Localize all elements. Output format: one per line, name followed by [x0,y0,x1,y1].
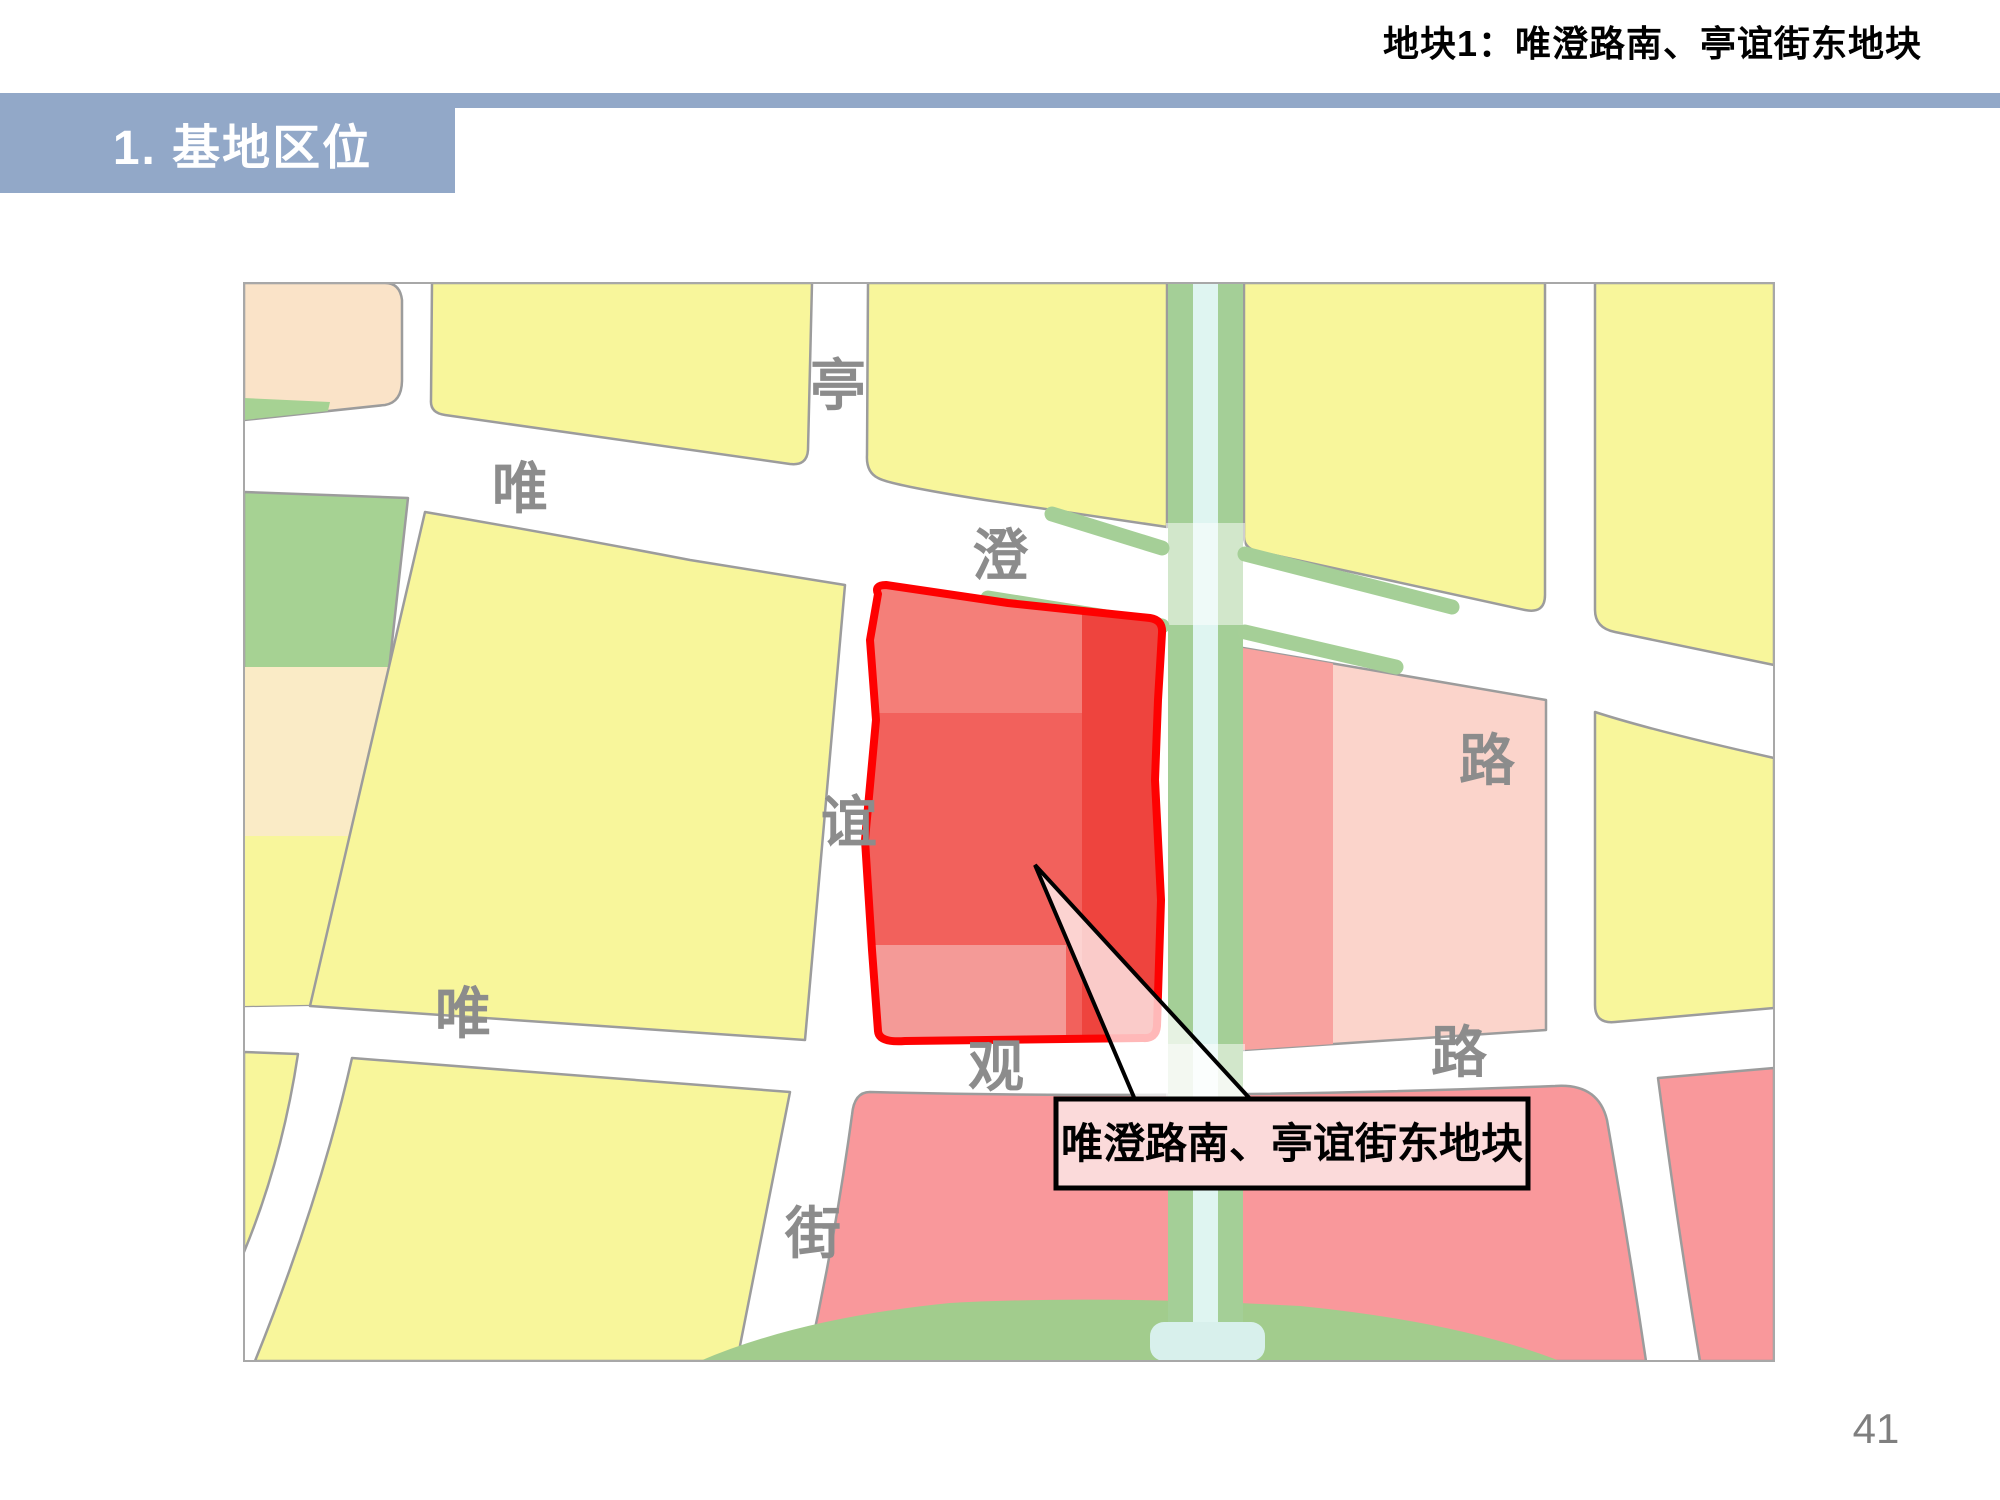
road-label-lu-lower: 路 [1431,1021,1488,1084]
page-number: 41 [1836,1405,1916,1453]
site-shade-bottom [870,945,1066,1045]
section-banner: 1. 基地区位 [0,93,455,193]
slide-page: 地块1：唯澄路南、亭谊街东地块 1. 基地区位 [0,0,2000,1500]
parcel-yellow-b [867,283,1167,527]
canal-water [1193,283,1218,1361]
road-label-yi: 谊 [821,791,877,854]
road-label-cheng: 澄 [972,524,1029,587]
parcel-yellow-e [1595,712,1774,1022]
zoning-map-svg: 亭 唯 澄 路 谊 唯 观 路 街 唯澄路南、亭谊街东地块 [243,282,1775,1362]
parcel-pink [1243,645,1546,1052]
parcel-peach [244,283,402,424]
parcel-yellow-g [244,1052,298,1252]
doc-title: 地块1：唯澄路南、亭谊街东地块 [1383,22,1922,66]
road-label-wei-upper: 唯 [492,457,548,520]
road-label-guan: 观 [968,1035,1024,1098]
road-label-ting: 亭 [810,354,866,417]
callout-label: 唯澄路南、亭谊街东地块 [1061,1120,1523,1167]
road-label-lu-upper: 路 [1459,729,1516,792]
road-label-wei-lower: 唯 [435,982,491,1045]
parcel-yellow-h [255,1058,790,1361]
section-title: 1. 基地区位 [113,108,372,178]
parcel-yellow-a [431,283,812,464]
parcel-salmon-b [1658,1068,1774,1361]
location-map: 亭 唯 澄 路 谊 唯 观 路 街 唯澄路南、亭谊街东地块 [243,282,1775,1362]
parcel-yellow-d [1595,283,1774,665]
road-label-jie: 街 [784,1202,841,1265]
